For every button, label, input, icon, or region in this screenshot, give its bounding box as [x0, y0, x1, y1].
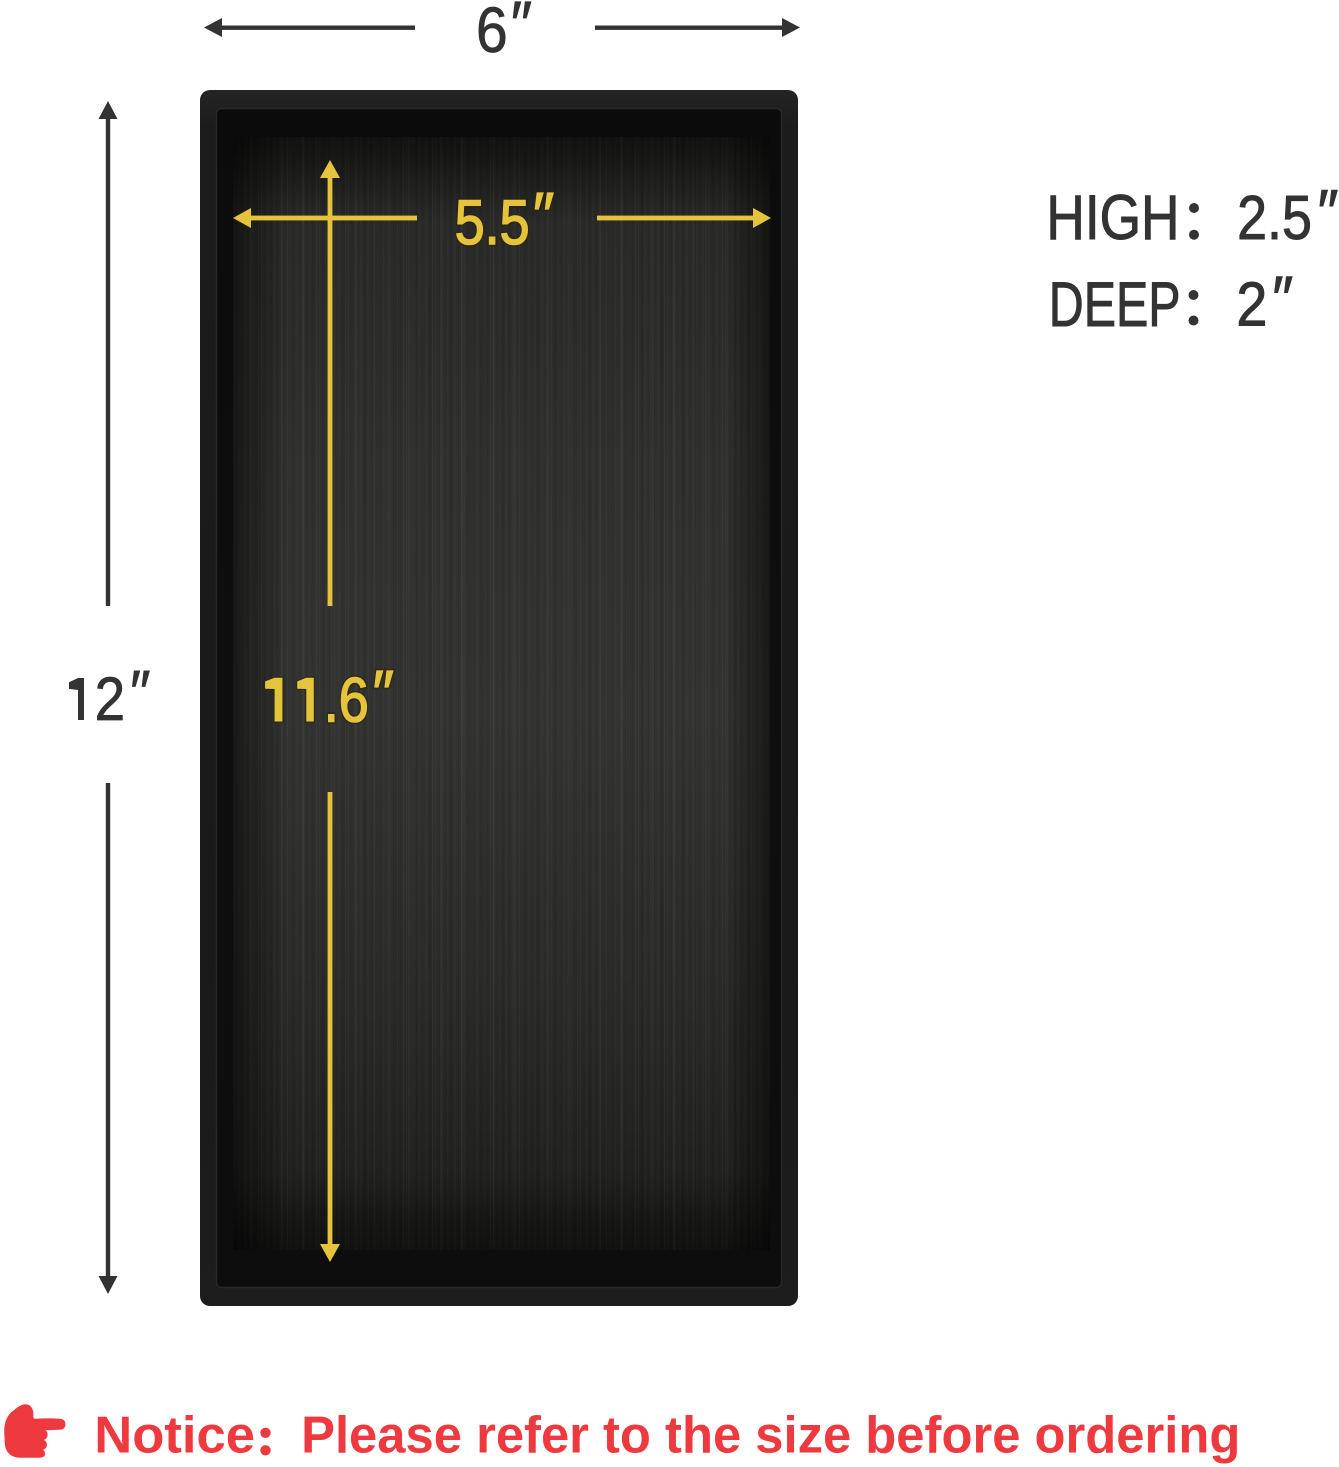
svg-text:DEEP: DEEP — [1049, 269, 1181, 340]
svg-text:6: 6 — [476, 0, 508, 66]
svg-text:HIGH: HIGH — [1046, 182, 1179, 252]
svg-text:″: ″ — [1272, 263, 1293, 333]
svg-text:″: ″ — [1318, 176, 1339, 246]
svg-text:2.5: 2.5 — [1237, 183, 1312, 252]
svg-text:″: ″ — [372, 658, 394, 728]
svg-text:″: ″ — [130, 658, 151, 727]
svg-text:″: ″ — [533, 180, 555, 250]
svg-text:Please refer to the size befor: Please refer to the size before ordering — [301, 1406, 1240, 1463]
svg-text:Notice: Notice — [94, 1407, 255, 1464]
svg-text:5.5: 5.5 — [455, 188, 530, 258]
svg-text:.6: .6 — [324, 665, 369, 735]
svg-text:2: 2 — [1236, 270, 1267, 340]
svg-text:″: ″ — [511, 0, 533, 61]
svg-text:2: 2 — [95, 665, 126, 733]
